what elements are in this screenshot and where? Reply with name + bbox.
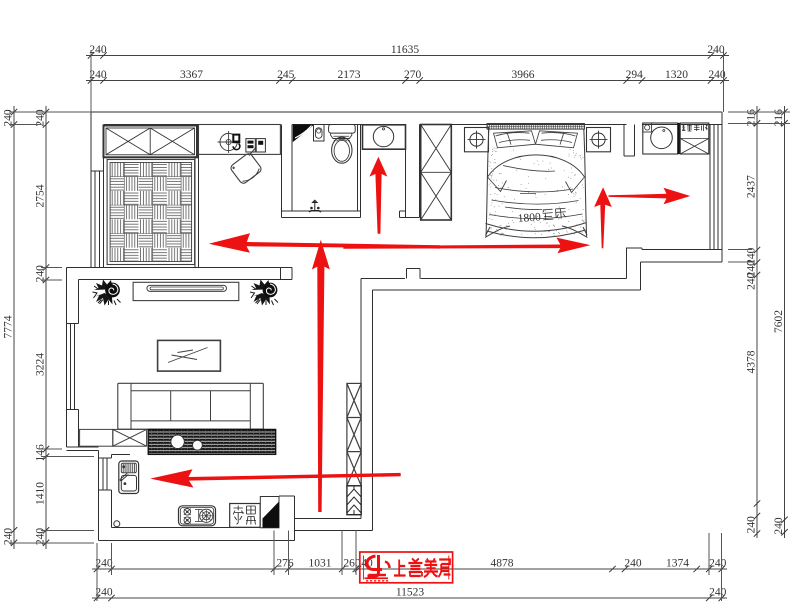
svg-text:146: 146 <box>35 444 47 462</box>
svg-text:240: 240 <box>773 517 785 535</box>
svg-text:270: 270 <box>404 69 422 81</box>
svg-text:3224: 3224 <box>35 353 47 376</box>
svg-text:260: 260 <box>343 558 361 570</box>
svg-text:240: 240 <box>95 558 113 570</box>
svg-text:240: 240 <box>709 587 727 599</box>
svg-text:240: 240 <box>89 69 107 81</box>
svg-text:240: 240 <box>95 587 113 599</box>
svg-text:240: 240 <box>709 558 727 570</box>
svg-text:3367: 3367 <box>180 69 203 81</box>
svg-text:4378: 4378 <box>746 350 758 373</box>
svg-text:2173: 2173 <box>338 69 361 81</box>
svg-text:1410: 1410 <box>35 482 47 505</box>
svg-text:240: 240 <box>624 558 642 570</box>
svg-text:4878: 4878 <box>491 558 514 570</box>
svg-text:294: 294 <box>626 69 644 81</box>
svg-text:240: 240 <box>89 44 107 56</box>
svg-text:245: 245 <box>277 69 295 81</box>
svg-text:276: 276 <box>276 558 294 570</box>
svg-text:2437: 2437 <box>746 175 758 198</box>
svg-text:1031: 1031 <box>309 558 332 570</box>
svg-text:240: 240 <box>746 272 758 290</box>
svg-text:11635: 11635 <box>391 44 420 56</box>
svg-text:240: 240 <box>746 516 758 534</box>
svg-text:7602: 7602 <box>773 310 785 333</box>
svg-text:240: 240 <box>707 44 725 56</box>
svg-text:2754: 2754 <box>35 184 47 207</box>
svg-text:7774: 7774 <box>3 315 15 338</box>
svg-text:1800: 1800 <box>517 211 541 225</box>
svg-text:11523: 11523 <box>396 587 425 599</box>
svg-text:3966: 3966 <box>512 69 535 81</box>
svg-text:1374: 1374 <box>666 558 689 570</box>
svg-text:1320: 1320 <box>665 69 688 81</box>
